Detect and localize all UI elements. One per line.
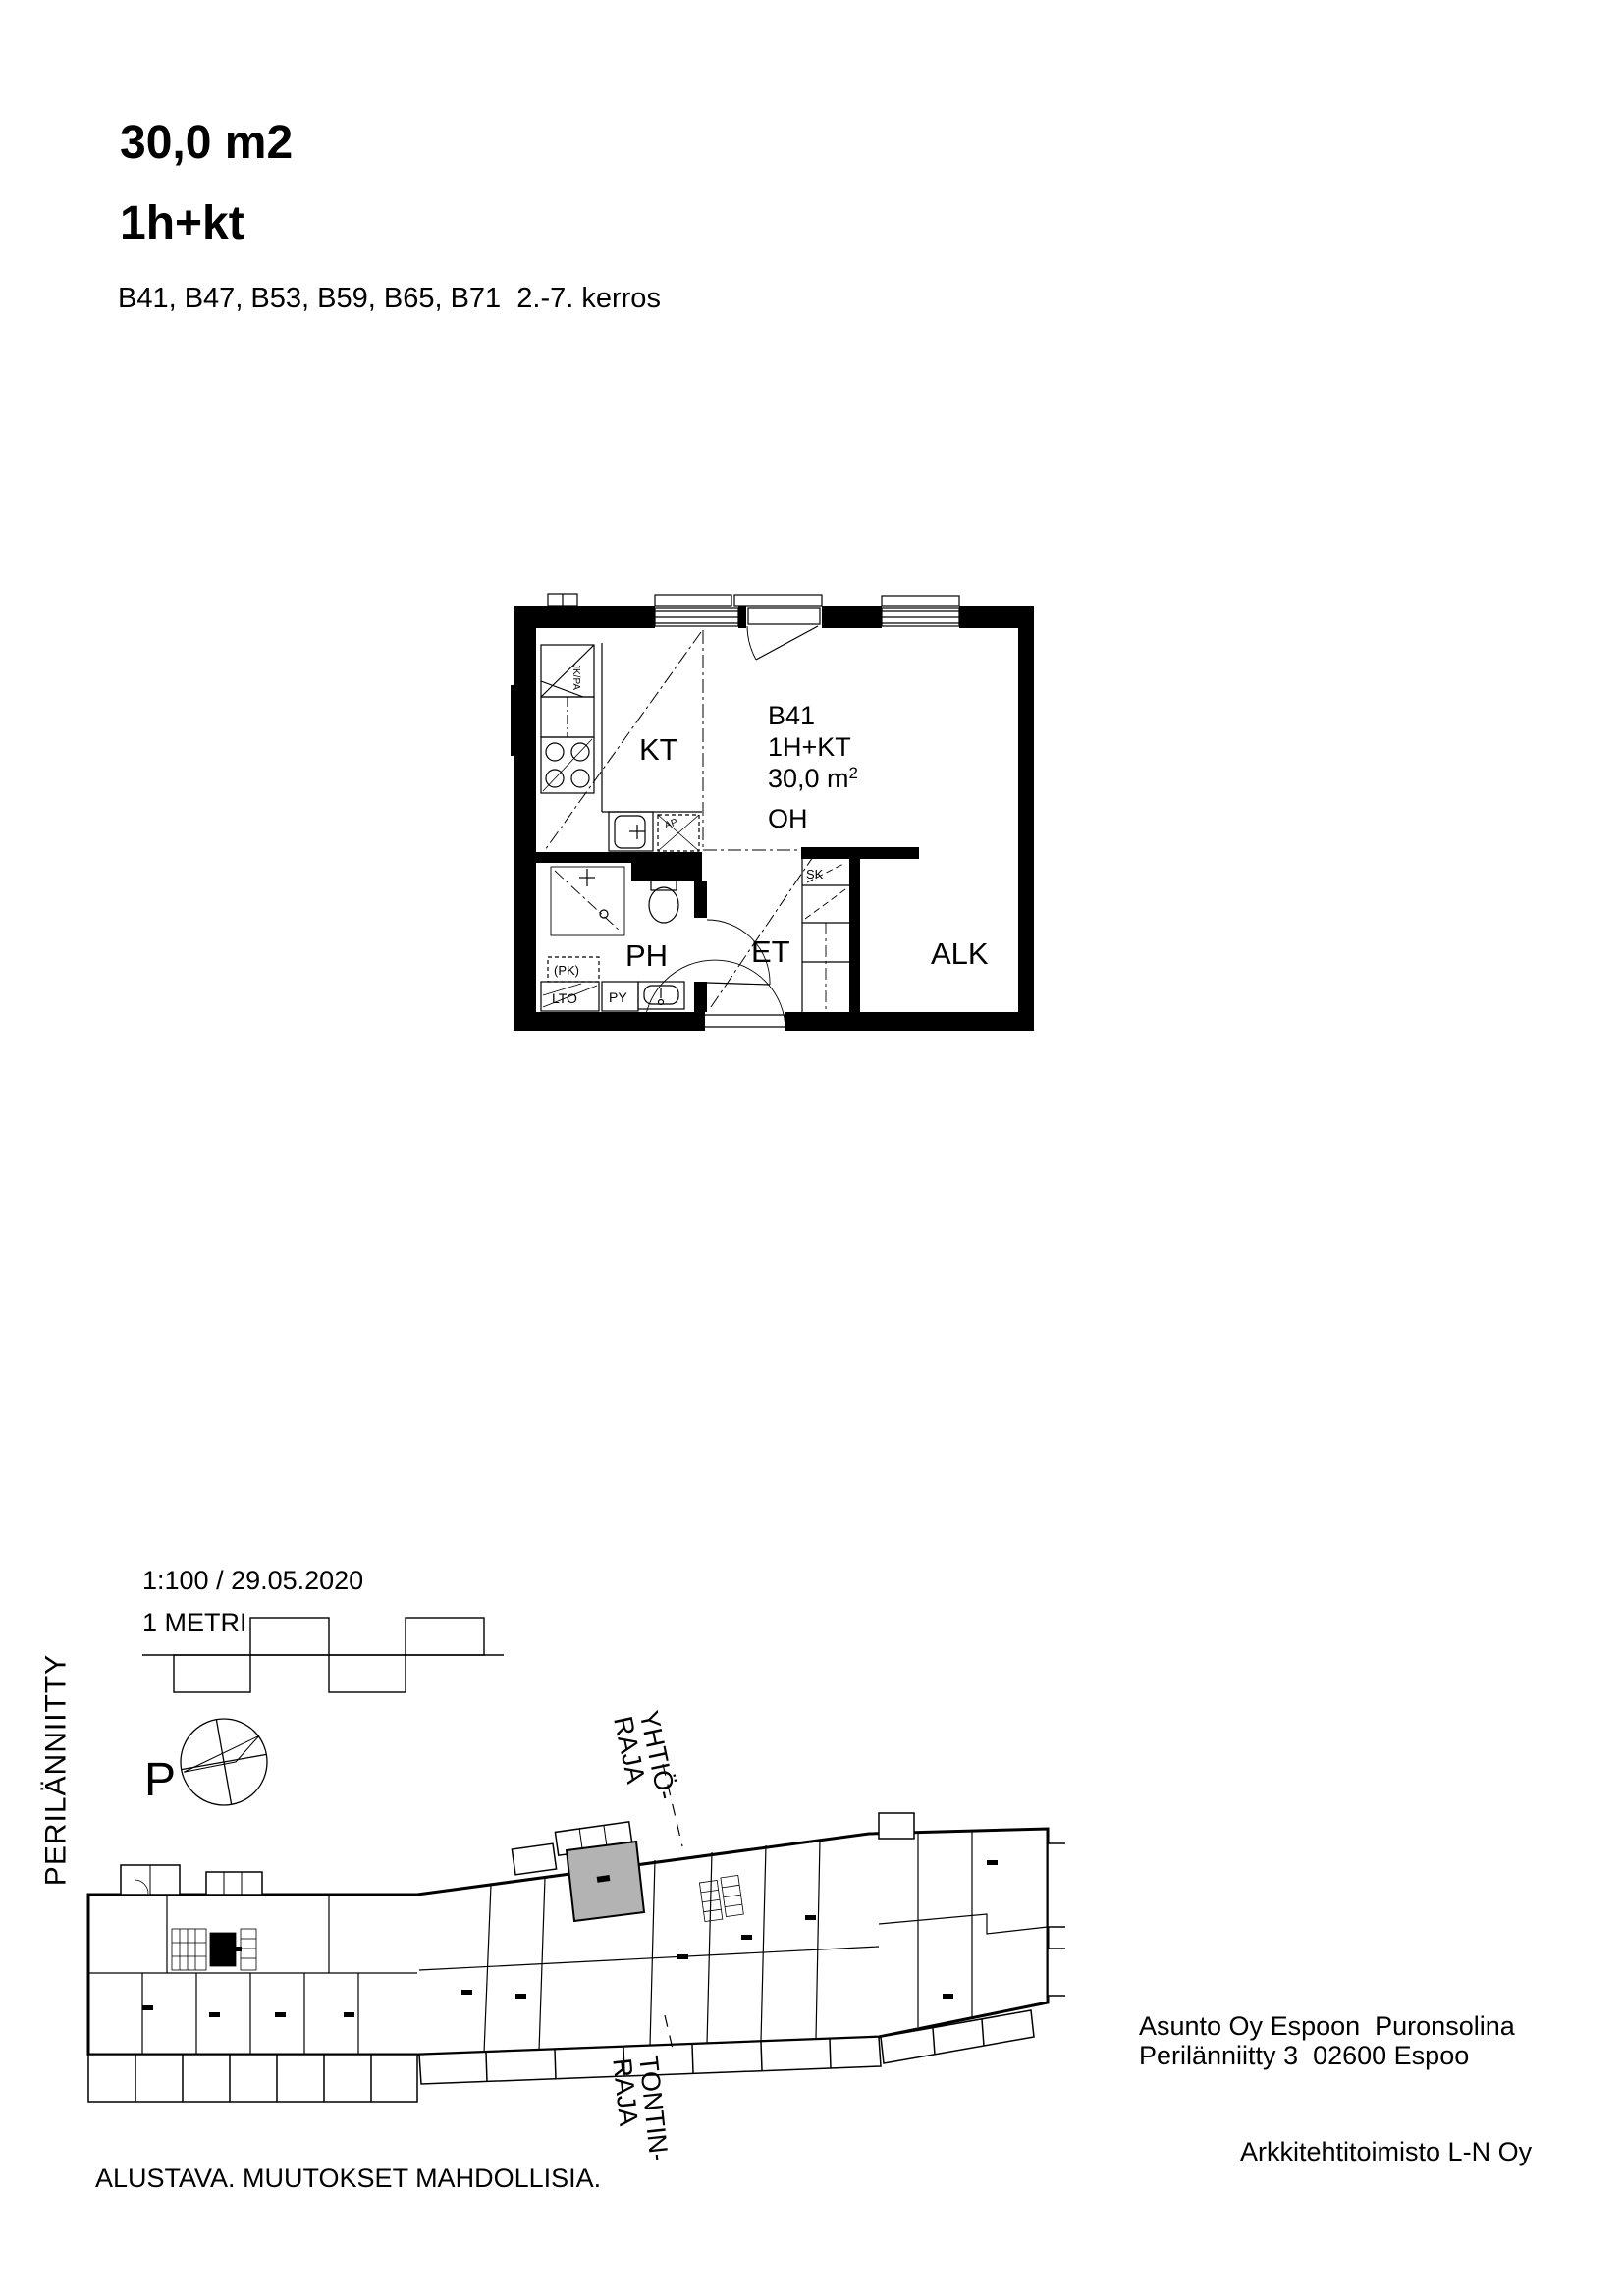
company-name: Asunto Oy Espoon Puronsolina [1139,2012,1515,2042]
scale-bar [142,1615,515,1697]
laundry-label: (PK) [554,963,579,978]
site-building [88,1813,1065,2102]
lto-label: LTO [552,990,577,1006]
svg-text:TONTIN- RAJA: TONTIN- RAJA [607,2055,675,2160]
architect-name: Arkkitehtitoimisto L-N Oy [1240,2138,1532,2167]
drawing-sheet: 30,0 m2 1h+kt B41, B47, B53, B59, B65, B… [0,0,1624,2296]
entry-label: ET [751,934,790,969]
scale-ratio-date: 1:100 / 29.05.2020 [142,1566,363,1596]
kitchen-label: KT [639,732,678,767]
street-name: PERILÄNNIITTY [40,1645,74,1896]
disclaimer: ALUSTAVA. MUUTOKSET MAHDOLLISIA. [95,2164,601,2194]
closet-label: SK [806,867,824,881]
toilet [649,881,678,923]
header-area: 30,0 m2 [120,116,293,170]
compass-icon [174,1712,274,1812]
unit-area: 30,0 m2 [768,764,858,793]
balcony-door [747,608,820,660]
header-type: 1h+kt [120,196,244,250]
unit-id: B41 [768,701,815,730]
site-plan: P [74,1703,1065,2160]
shower [551,867,624,935]
unit-type: 1H+KT [768,732,851,762]
closet-column [802,859,849,1012]
unit-info-block: B41 1H+KT 30,0 m2 OH [768,701,858,833]
bathroom-label: PH [625,938,668,973]
alcove-label: ALK [931,936,989,971]
stove [541,737,594,793]
svg-text:YHTIÖ- RAJA: YHTIÖ- RAJA [608,1708,682,1815]
window-right [882,596,959,626]
company-address: Perilänniitty 3 02600 Espoo [1139,2042,1469,2071]
fridge-label: JK/PA [570,664,581,690]
unit-living: OH [768,804,808,833]
dishwasher-label: AP [664,817,679,831]
py-label: PY [609,989,627,1005]
vent-box [548,594,577,606]
floor-plan: JK/PA [511,587,1065,1147]
kitchen-counter [541,643,702,812]
fridge-cabinet [541,645,594,697]
washbasin [638,982,684,1009]
header-apartments: B41, B47, B53, B59, B65, B71 2.-7. kerro… [118,283,661,315]
sink [609,812,653,851]
north-label: P [144,1754,176,1806]
